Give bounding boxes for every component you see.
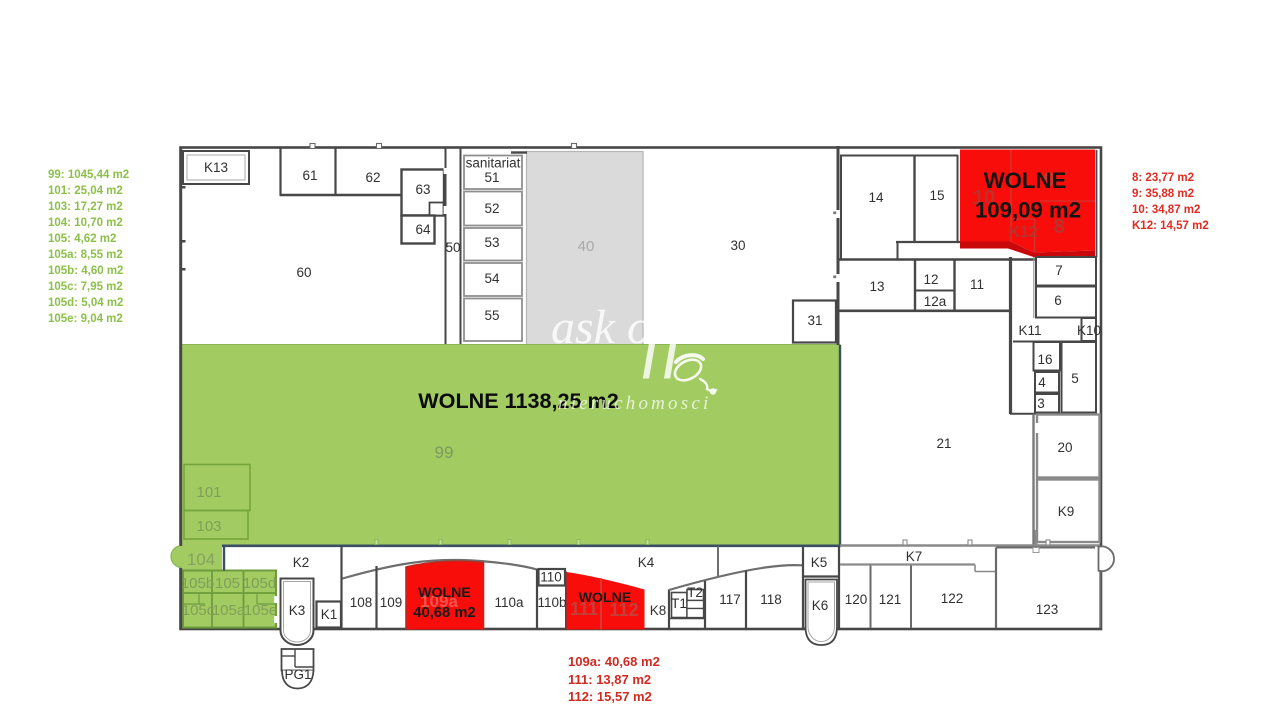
svg-text:122: 122: [941, 591, 964, 606]
svg-text:105b: 105b: [181, 575, 214, 592]
svg-text:110a: 110a: [494, 595, 524, 610]
svg-text:3: 3: [1037, 396, 1045, 411]
svg-text:K4: K4: [638, 555, 655, 570]
svg-text:105: 4,62 m2: 105: 4,62 m2: [48, 233, 116, 245]
svg-text:118: 118: [760, 592, 782, 607]
svg-text:K3: K3: [289, 603, 306, 618]
svg-text:99: 1045,44 m2: 99: 1045,44 m2: [48, 169, 129, 181]
svg-text:60: 60: [296, 265, 311, 280]
svg-text:10: 34,87 m2: 10: 34,87 m2: [1132, 204, 1200, 216]
svg-text:K1: K1: [321, 607, 338, 622]
svg-text:nieruchomosci: nieruchomosci: [558, 393, 711, 414]
svg-text:7: 7: [1055, 263, 1063, 278]
svg-text:103: 103: [196, 518, 221, 535]
svg-text:16: 16: [1037, 352, 1052, 367]
svg-text:105d: 105d: [243, 575, 276, 592]
svg-text:103: 17,27 m2: 103: 17,27 m2: [48, 201, 123, 213]
svg-text:40: 40: [578, 238, 595, 255]
svg-text:117: 117: [719, 592, 741, 607]
svg-text:105d: 5,04 m2: 105d: 5,04 m2: [48, 297, 123, 309]
svg-text:K7: K7: [906, 549, 923, 564]
svg-text:105e: 105e: [244, 602, 277, 619]
svg-text:40,68 m2: 40,68 m2: [413, 605, 476, 621]
svg-text:K6: K6: [812, 598, 829, 613]
svg-text:101: 101: [196, 484, 221, 501]
svg-text:20: 20: [1057, 440, 1072, 455]
svg-text:108: 108: [350, 595, 373, 610]
svg-text:104: 10,70 m2: 104: 10,70 m2: [48, 217, 123, 229]
svg-text:105e: 9,04 m2: 105e: 9,04 m2: [48, 313, 123, 325]
svg-text:WOLNE: WOLNE: [984, 168, 1067, 193]
svg-text:K13: K13: [204, 160, 228, 175]
svg-text:51: 51: [484, 170, 499, 185]
svg-text:11: 11: [970, 277, 984, 292]
svg-text:62: 62: [365, 170, 380, 185]
svg-text:63: 63: [415, 182, 430, 197]
svg-text:121: 121: [879, 592, 902, 607]
svg-text:21: 21: [936, 436, 951, 451]
svg-text:5: 5: [1071, 371, 1079, 386]
svg-text:105c: 105c: [182, 602, 215, 619]
svg-text:30: 30: [730, 238, 745, 253]
svg-text:105a: 105a: [212, 602, 246, 619]
svg-text:111: 13,87 m2: 111: 13,87 m2: [568, 672, 651, 687]
svg-text:109a: 40,68 m2: 109a: 40,68 m2: [568, 654, 660, 669]
svg-text:ask o: ask o: [551, 301, 651, 354]
svg-text:WOLNE: WOLNE: [579, 590, 632, 606]
svg-text:64: 64: [415, 222, 431, 237]
svg-text:105c: 7,95 m2: 105c: 7,95 m2: [48, 281, 123, 293]
svg-text:55: 55: [484, 308, 499, 323]
svg-text:105: 105: [215, 575, 240, 592]
svg-text:110: 110: [540, 570, 562, 585]
svg-text:112: 15,57 m2: 112: 15,57 m2: [568, 689, 652, 704]
svg-text:31: 31: [807, 313, 822, 328]
svg-text:14: 14: [868, 190, 884, 205]
svg-text:K9: K9: [1058, 504, 1075, 519]
svg-text:99: 99: [435, 443, 454, 462]
svg-text:61: 61: [302, 168, 317, 183]
svg-text:PG1: PG1: [284, 667, 311, 682]
svg-text:109: 109: [380, 595, 403, 610]
svg-text:109,09 m2: 109,09 m2: [975, 198, 1081, 223]
svg-text:sanitariat: sanitariat: [466, 156, 521, 171]
svg-text:12: 12: [923, 272, 938, 287]
svg-text:K12: 14,57 m2: K12: 14,57 m2: [1132, 220, 1209, 232]
svg-text:54: 54: [484, 271, 500, 286]
svg-text:15: 15: [929, 188, 944, 203]
svg-text:4: 4: [1038, 375, 1046, 390]
svg-text:105a: 8,55 m2: 105a: 8,55 m2: [48, 249, 123, 261]
svg-text:101: 25,04 m2: 101: 25,04 m2: [48, 185, 123, 197]
svg-text:6: 6: [1054, 293, 1062, 308]
svg-text:13: 13: [869, 279, 884, 294]
svg-text:K11: K11: [1018, 323, 1041, 338]
svg-text:123: 123: [1036, 602, 1059, 617]
svg-text:110b: 110b: [537, 595, 566, 610]
svg-text:12a: 12a: [924, 294, 947, 309]
svg-text:104: 104: [187, 550, 215, 569]
svg-text:K12: K12: [1008, 224, 1037, 241]
svg-text:120: 120: [845, 592, 868, 607]
svg-text:52: 52: [484, 201, 499, 216]
svg-text:8: 23,77 m2: 8: 23,77 m2: [1132, 172, 1194, 184]
svg-text:WOLNE: WOLNE: [418, 585, 471, 601]
svg-text:T2: T2: [687, 585, 703, 600]
svg-text:K2: K2: [293, 555, 310, 570]
svg-text:53: 53: [484, 235, 499, 250]
svg-text:K10: K10: [1077, 323, 1101, 338]
svg-text:K8: K8: [650, 603, 667, 618]
svg-text:K5: K5: [811, 555, 828, 570]
svg-text:T1: T1: [671, 596, 687, 611]
svg-text:50: 50: [445, 240, 460, 255]
svg-text:105b: 4,60 m2: 105b: 4,60 m2: [48, 265, 123, 277]
svg-text:9: 35,88 m2: 9: 35,88 m2: [1132, 188, 1194, 200]
